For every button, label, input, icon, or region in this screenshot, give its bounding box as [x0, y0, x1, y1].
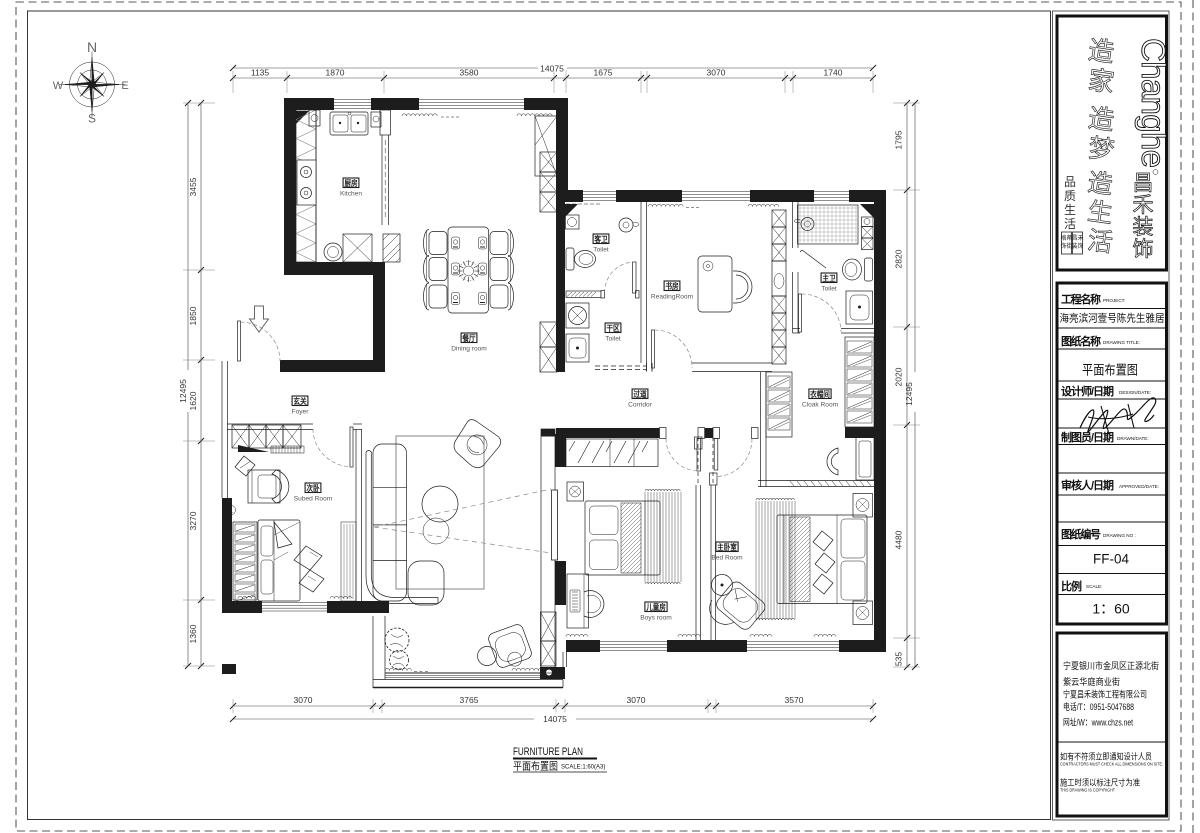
- svg-text:3580: 3580: [460, 68, 479, 78]
- svg-text:餐厅: 餐厅: [462, 333, 476, 343]
- svg-text:14075: 14075: [540, 64, 564, 74]
- svg-text:海亮滨河壹号陈先生雅居: 海亮滨河壹号陈先生雅居: [1060, 312, 1165, 325]
- svg-text:如有不符须立即通知设计人员: 如有不符须立即通知设计人员: [1060, 751, 1152, 762]
- svg-text:SCALE:1:60(A3): SCALE:1:60(A3): [561, 765, 605, 771]
- svg-text:1850: 1850: [188, 306, 198, 325]
- svg-text:造: 造: [1086, 102, 1116, 135]
- svg-text:平面布置图: 平面布置图: [513, 761, 558, 773]
- svg-text:1795: 1795: [894, 130, 904, 149]
- svg-text:Boys room: Boys room: [640, 615, 672, 622]
- svg-text:4480: 4480: [894, 530, 904, 549]
- svg-text:Kitchen: Kitchen: [340, 191, 362, 198]
- svg-text:THIS DRAWING IS COPYRIGHT: THIS DRAWING IS COPYRIGHT: [1060, 788, 1115, 793]
- svg-text:12495: 12495: [178, 379, 188, 403]
- svg-text:PROJECT:: PROJECT:: [1103, 298, 1125, 303]
- svg-text:12495: 12495: [904, 382, 914, 406]
- svg-text:Changhe: Changhe: [1135, 38, 1172, 168]
- svg-text:紫云华庭商业街: 紫云华庭商业街: [1063, 676, 1120, 687]
- svg-text:Toilet: Toilet: [605, 336, 621, 343]
- svg-text:装: 装: [1133, 216, 1154, 239]
- svg-text:N: N: [87, 39, 97, 55]
- svg-text:品: 品: [1064, 175, 1076, 189]
- svg-text:3765: 3765: [460, 695, 479, 705]
- svg-text:生: 生: [1086, 197, 1115, 228]
- svg-text:施工时须以标注尺寸为准: 施工时须以标注尺寸为准: [1060, 777, 1140, 788]
- svg-text:书房: 书房: [665, 281, 678, 291]
- svg-text:Toilet: Toilet: [593, 247, 609, 254]
- svg-text:家: 家: [1086, 64, 1116, 97]
- svg-text:1620: 1620: [188, 391, 198, 410]
- svg-text:1870: 1870: [326, 68, 345, 78]
- svg-text:饰: 饰: [1133, 238, 1154, 261]
- svg-text:装饰: 装饰: [1071, 242, 1083, 250]
- svg-text:ReadingRoom: ReadingRoom: [651, 294, 694, 301]
- svg-text:昌禾: 昌禾: [1071, 234, 1083, 242]
- svg-text:干区: 干区: [606, 324, 619, 333]
- svg-text:3070: 3070: [707, 68, 726, 78]
- svg-text:衣帽间: 衣帽间: [810, 389, 830, 399]
- svg-text:Dining room: Dining room: [451, 346, 487, 353]
- svg-text:3070: 3070: [627, 695, 646, 705]
- svg-text:次卧: 次卧: [306, 483, 319, 493]
- svg-text:活: 活: [1086, 226, 1115, 257]
- svg-text:儿童房: 儿童房: [645, 602, 666, 612]
- svg-text:3455: 3455: [188, 177, 198, 196]
- svg-text:1：60: 1：60: [1092, 601, 1130, 617]
- svg-text:质: 质: [1064, 189, 1076, 203]
- svg-text:禾: 禾: [1133, 194, 1154, 217]
- svg-text:DRAWN/DATE:: DRAWN/DATE:: [1117, 436, 1149, 441]
- svg-text:Subed Room: Subed Room: [294, 496, 333, 503]
- svg-text:主卧室: 主卧室: [717, 542, 737, 552]
- svg-text:2020: 2020: [894, 367, 904, 386]
- svg-text:昌: 昌: [1133, 172, 1154, 195]
- svg-text:DRAWING NO :: DRAWING NO :: [1103, 533, 1136, 538]
- svg-text:梦: 梦: [1086, 132, 1116, 165]
- svg-text:工程名称: 工程名称: [1061, 292, 1101, 306]
- svg-text:1360: 1360: [188, 624, 198, 643]
- svg-text:FURNITURE PLAN: FURNITURE PLAN: [513, 746, 583, 758]
- svg-text:APPROVED/DATE:: APPROVED/DATE:: [1119, 484, 1159, 489]
- svg-text:1740: 1740: [824, 68, 843, 78]
- svg-text:S: S: [88, 112, 96, 126]
- svg-text:3070: 3070: [294, 695, 313, 705]
- svg-text:3270: 3270: [188, 511, 198, 530]
- svg-text:平面布置图: 平面布置图: [1082, 363, 1138, 378]
- svg-text:玄关: 玄关: [293, 396, 306, 406]
- svg-text:DESIGN/DATE:: DESIGN/DATE:: [1119, 390, 1151, 395]
- svg-text:网址/W：www.chzs.net: 网址/W：www.chzs.net: [1063, 717, 1133, 728]
- svg-text:生: 生: [1064, 203, 1076, 217]
- svg-text:SCALE:: SCALE:: [1086, 584, 1102, 589]
- svg-text:客卫: 客卫: [594, 234, 608, 244]
- svg-text:Foyer: Foyer: [292, 409, 310, 416]
- svg-text:审核人/日期: 审核人/日期: [1061, 478, 1114, 492]
- svg-text:1135: 1135: [251, 68, 270, 78]
- svg-text:FF-04: FF-04: [1093, 552, 1129, 567]
- svg-text:过道: 过道: [633, 389, 646, 399]
- svg-text:图纸名称: 图纸名称: [1061, 334, 1101, 348]
- svg-text:Toilet: Toilet: [821, 286, 837, 293]
- svg-text:主卫: 主卫: [822, 273, 835, 283]
- svg-text:Corridor: Corridor: [628, 402, 653, 409]
- svg-text:电话/T：0951-5047688: 电话/T：0951-5047688: [1063, 701, 1134, 712]
- svg-text:活: 活: [1064, 217, 1076, 231]
- svg-text:Cloak Room: Cloak Room: [802, 402, 839, 409]
- svg-text:1675: 1675: [594, 68, 613, 78]
- svg-text:E: E: [121, 80, 128, 92]
- svg-text:DRAWING TITLE:: DRAWING TITLE:: [1103, 340, 1140, 345]
- svg-text:CONTRACTORS MUST CHECK ALL DIM: CONTRACTORS MUST CHECK ALL DIMENSIONS ON…: [1060, 762, 1163, 767]
- svg-text:535: 535: [894, 652, 904, 666]
- svg-text:W: W: [53, 80, 64, 92]
- svg-text:3570: 3570: [785, 695, 804, 705]
- svg-text:宁夏银川市金凤区正源北街: 宁夏银川市金凤区正源北街: [1063, 660, 1159, 671]
- svg-text:图纸编号: 图纸编号: [1061, 527, 1101, 541]
- svg-text:Bed Room: Bed Room: [711, 555, 743, 562]
- svg-text:宁夏昌禾装饰工程有限公司: 宁夏昌禾装饰工程有限公司: [1063, 689, 1147, 700]
- svg-text:14075: 14075: [543, 714, 567, 724]
- svg-text:比例: 比例: [1061, 579, 1082, 593]
- svg-text:2820: 2820: [894, 249, 904, 268]
- svg-text:造: 造: [1086, 168, 1115, 199]
- svg-text:设计师/日期: 设计师/日期: [1061, 384, 1114, 398]
- svg-text:厨房: 厨房: [344, 178, 357, 188]
- svg-text:造: 造: [1086, 34, 1116, 67]
